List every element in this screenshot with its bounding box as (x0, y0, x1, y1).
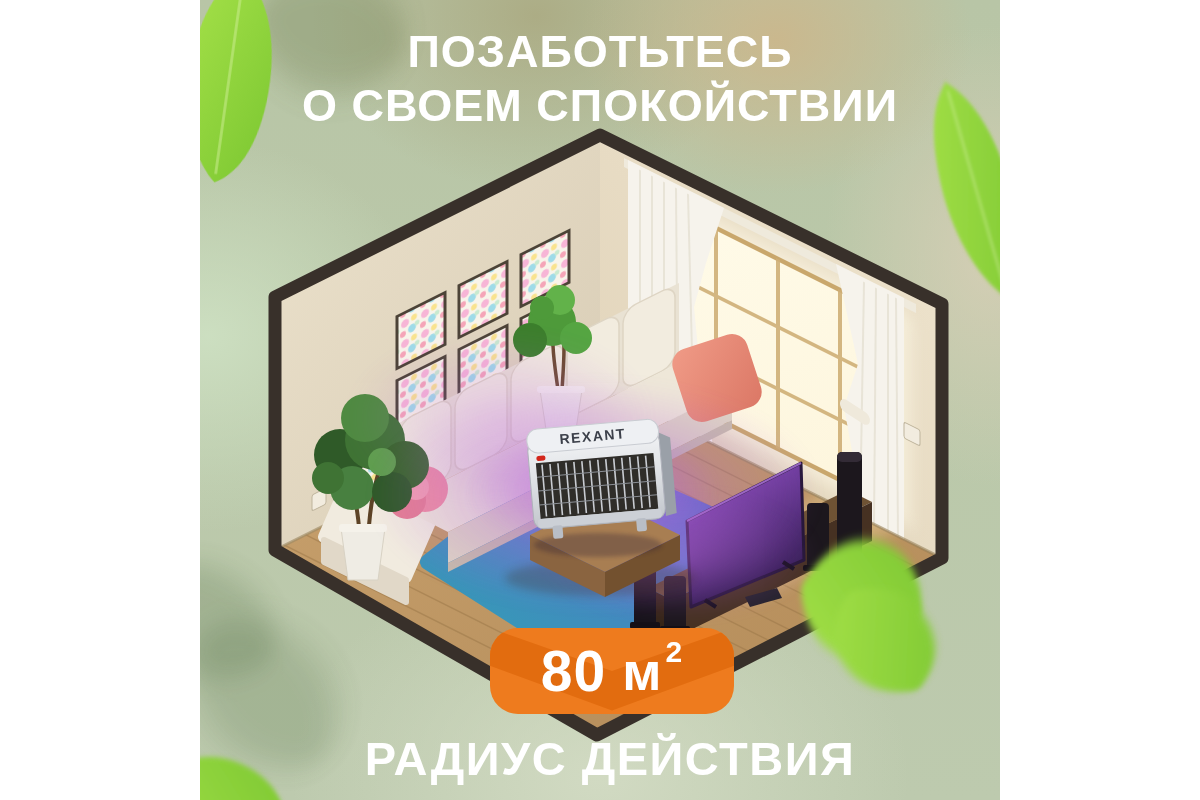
headline-line1: ПОЗАБОТЬТЕСЬ (200, 25, 1000, 79)
device-shadow (534, 533, 662, 557)
headline-line2: О СВОЕМ СПОКОЙСТВИИ (200, 79, 1000, 133)
device-leg-right (636, 518, 647, 532)
power-indicator-light (536, 455, 545, 461)
area-superscript: 2 (665, 637, 683, 667)
caption-label: РАДИУС ДЕЙСТВИЯ (365, 731, 856, 786)
banner-canvas: REXANT (200, 0, 1000, 800)
area-unit: м (622, 645, 662, 698)
device-leg-left (552, 525, 563, 539)
plant-pot (341, 528, 385, 580)
area-badge: 80 м 2 (490, 628, 734, 714)
headline: ПОЗАБОТЬТЕСЬ О СВОЕМ СПОКОЙСТВИИ (200, 25, 1000, 133)
area-badge-text: 80 м 2 (541, 643, 683, 700)
area-value: 80 (541, 643, 606, 700)
marketing-banner: REXANT (0, 0, 1200, 800)
